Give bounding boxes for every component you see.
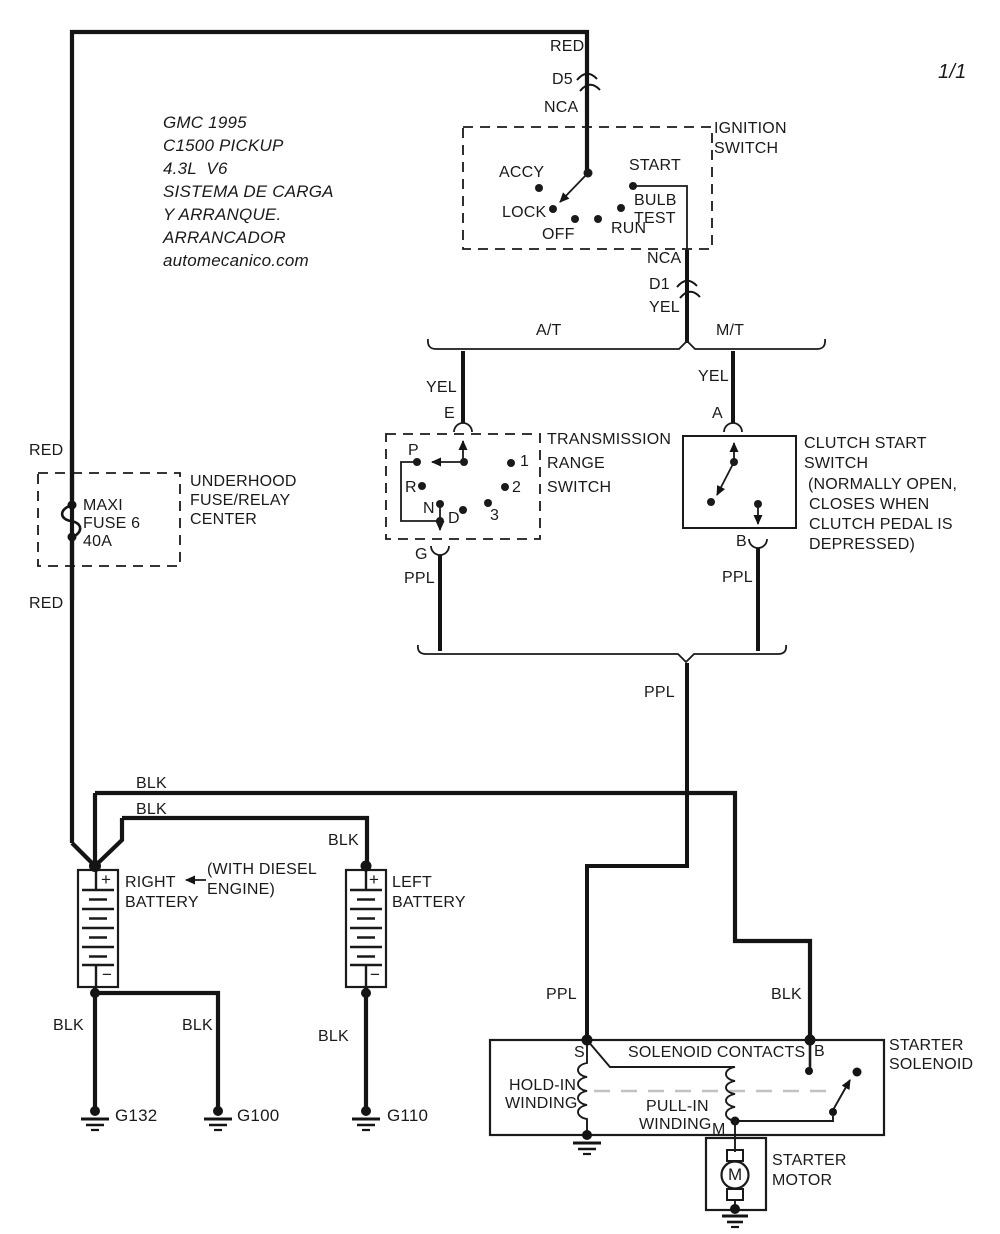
red-feed-wire <box>72 32 587 866</box>
clutch-switch-label-4: CLOSES WHEN <box>809 496 929 513</box>
clutch-switch-label-5: CLUTCH PEDAL IS <box>809 516 953 533</box>
left-battery-label-2: BATTERY <box>392 894 466 911</box>
wire-label-ppl-s: PPL <box>546 986 577 1003</box>
gear-label-n: N <box>423 500 435 517</box>
starter-motor-label-1: STARTER <box>772 1152 847 1169</box>
wire-label-nca-top: NCA <box>544 99 578 116</box>
clutch-start-switch <box>683 423 796 548</box>
maxi-fuse-label-2: FUSE 6 <box>83 515 140 532</box>
branch-label-mt: M/T <box>716 322 744 339</box>
ppl-merge-brace <box>418 645 786 662</box>
wire-label-blk-2: BLK <box>136 801 167 818</box>
clutch-switch-label-2: SWITCH <box>804 455 868 472</box>
ground-symbol-g100 <box>204 1106 232 1130</box>
wire-label-blk-b: BLK <box>771 986 802 1003</box>
ignition-pos-bulb: BULB <box>634 192 677 209</box>
title-line-5: Y ARRANQUE. <box>163 206 281 224</box>
terminal-label-b-clutch: B <box>736 533 747 550</box>
wiring-diagram-page: 1/1GMC 1995C1500 PICKUP4.3L V6SISTEMA DE… <box>0 0 1000 1234</box>
hold-in-winding-label-2: WINDING <box>505 1095 578 1112</box>
starter-solenoid-label-1: STARTER <box>889 1037 964 1054</box>
wire-label-nca-mid: NCA <box>647 250 681 267</box>
left-battery-label-1: LEFT <box>392 874 432 891</box>
title-line-6: ARRANCADOR <box>163 229 286 247</box>
title-line-2: C1500 PICKUP <box>163 137 284 155</box>
starter-solenoid-label-2: SOLENOID <box>889 1056 973 1073</box>
trans-switch-label-3: SWITCH <box>547 479 611 496</box>
wire-label-red-2: RED <box>29 595 63 612</box>
motor-ground-icon <box>722 1216 748 1227</box>
gear-label-r: R <box>405 479 417 496</box>
title-line-1: GMC 1995 <box>163 114 247 132</box>
diesel-note-label-2: ENGINE) <box>207 881 275 898</box>
gear-label-1: 1 <box>520 453 529 470</box>
fuse-center-label-2: FUSE/RELAY <box>190 492 290 509</box>
terminal-label-e: E <box>444 405 455 422</box>
gear-label-d: D <box>448 510 460 527</box>
ground-label-g110: G110 <box>387 1107 428 1125</box>
trans-switch-label-2: RANGE <box>547 455 605 472</box>
fuse-center-label-1: UNDERHOOD <box>190 473 297 490</box>
wire-label-yel-left: YEL <box>426 379 457 396</box>
terminal-label-b-sol: B <box>814 1043 825 1060</box>
terminal-label-g: G <box>415 546 428 563</box>
gear-label-3: 3 <box>490 507 499 524</box>
fuse-center-label-3: CENTER <box>190 511 257 528</box>
wire-label-red-1: RED <box>29 442 63 459</box>
clutch-switch-label-3: (NORMALLY OPEN, <box>808 476 957 493</box>
branch-label-at: A/T <box>536 322 562 339</box>
left-battery-minus: − <box>370 966 380 984</box>
maxi-fuse-label-1: MAXI <box>83 497 123 514</box>
solenoid-contacts-label: SOLENOID CONTACTS <box>628 1044 805 1061</box>
pull-in-winding-label-1: PULL-IN <box>646 1098 709 1115</box>
wire-label-yel-right: YEL <box>698 368 729 385</box>
right-battery-label-1: RIGHT <box>125 874 176 891</box>
ignition-pos-run: RUN <box>611 220 646 237</box>
blk-wires <box>95 793 810 1110</box>
yel-branch-wires <box>463 351 733 423</box>
ignition-switch-label-2: SWITCH <box>714 140 778 157</box>
terminal-label-m: M <box>712 1121 726 1138</box>
pull-in-winding-label-2: WINDING <box>639 1116 712 1133</box>
clutch-switch-label-1: CLUTCH START <box>804 435 927 452</box>
wire-label-blk-1: BLK <box>136 775 167 792</box>
starter-motor-label-2: MOTOR <box>772 1172 832 1189</box>
connector-label-d5: D5 <box>552 71 573 88</box>
maxi-fuse-label-3: 40A <box>83 533 112 550</box>
right-battery-minus: − <box>102 966 112 984</box>
ignition-pos-off: OFF <box>542 226 575 243</box>
ignition-pos-lock: LOCK <box>502 204 546 221</box>
wire-label-ppl-center: PPL <box>644 684 675 701</box>
trans-switch-label-1: TRANSMISSION <box>547 431 671 448</box>
wire-label-red-top: RED <box>550 38 584 55</box>
branch-split-brace <box>428 339 825 349</box>
title-line-7: automecanico.com <box>163 252 309 270</box>
wire-label-ppl-left: PPL <box>404 570 435 587</box>
wire-label-blk-g100: BLK <box>182 1017 213 1034</box>
ignition-pos-accy: ACCY <box>499 164 544 181</box>
title-line-3: 4.3L V6 <box>163 160 228 178</box>
page-number: 1/1 <box>938 62 966 84</box>
connector-label-d1: D1 <box>649 276 670 293</box>
ground-label-g132: G132 <box>115 1107 157 1125</box>
ground-symbol-g132 <box>81 1106 109 1130</box>
terminal-label-a: A <box>712 405 723 422</box>
wire-label-yel-mid: YEL <box>649 299 680 316</box>
terminal-label-s: S <box>574 1044 585 1061</box>
solenoid-ground-icon <box>573 1143 601 1154</box>
gear-label-2: 2 <box>512 479 521 496</box>
wiring-linework <box>0 0 1000 1234</box>
wire-label-blk-3: BLK <box>328 832 359 849</box>
wire-label-ppl-right: PPL <box>722 569 753 586</box>
ground-symbol-g110 <box>352 1106 380 1130</box>
wire-label-blk-g132: BLK <box>53 1017 84 1034</box>
clutch-switch-label-6: DEPRESSED) <box>809 536 915 553</box>
diesel-note-label-1: (WITH DIESEL <box>207 861 317 878</box>
motor-symbol-m: M <box>728 1166 742 1184</box>
left-battery-plus: + <box>369 871 379 889</box>
hold-in-winding-label-1: HOLD-IN <box>509 1077 576 1094</box>
ignition-switch-label-1: IGNITION <box>714 120 787 137</box>
gear-label-p: P <box>408 442 419 459</box>
title-line-4: SISTEMA DE CARGA <box>163 183 334 201</box>
right-battery-plus: + <box>101 871 111 889</box>
ignition-pos-start: START <box>629 157 681 174</box>
ground-label-g100: G100 <box>237 1107 279 1125</box>
right-battery-label-2: BATTERY <box>125 894 199 911</box>
wire-label-blk-g110: BLK <box>318 1028 349 1045</box>
